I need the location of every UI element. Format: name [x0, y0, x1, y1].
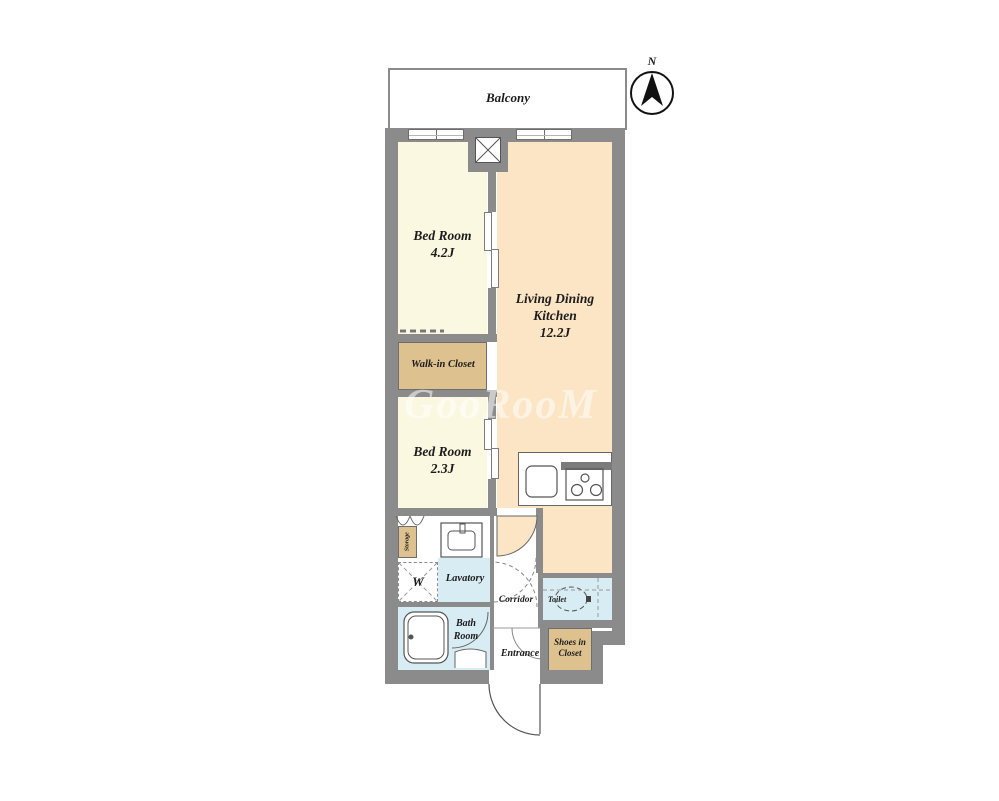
wall-bed1-wic	[398, 334, 497, 342]
compass-icon	[631, 72, 673, 114]
shoes-line1: Shoes in	[554, 637, 586, 647]
wall-right	[612, 128, 625, 645]
floor-plan: Balcony	[0, 0, 999, 801]
bathroom-label: Bath Room	[442, 618, 490, 643]
window-left	[408, 129, 464, 140]
window-right	[516, 129, 572, 140]
wall-bed2-ldk-lower	[488, 479, 496, 508]
walkin-closet-label: Walk-in Closet	[393, 358, 493, 371]
entrance-label: Entrance	[492, 648, 548, 661]
pillar-core	[475, 137, 501, 163]
balcony-label: Balcony	[448, 90, 568, 106]
wall-corridor-left	[490, 514, 494, 670]
washer-label: W	[408, 574, 428, 590]
room-ldk-lower	[538, 508, 612, 573]
bedroom1-name: Bed Room	[413, 228, 471, 243]
entrance-door	[489, 684, 540, 735]
range-hood	[561, 462, 612, 470]
wall-toilet-bottom	[538, 620, 625, 628]
compass-n-label: N	[644, 54, 660, 69]
ldk-line1: Living Dining	[516, 291, 594, 306]
ldk-label: Living Dining Kitchen 12.2J	[495, 291, 615, 342]
bedroom2-name: Bed Room	[413, 444, 471, 459]
bathroom-line1: Bath	[456, 618, 476, 629]
corridor-label: Corridor	[490, 595, 542, 607]
wall-lav-bath	[385, 602, 492, 607]
bedroom2-label: Bed Room 2.3J	[390, 444, 495, 478]
wall-toilet-top	[538, 573, 625, 578]
wall-ldk-corridor	[536, 508, 543, 573]
lavatory-label: Lavatory	[436, 572, 494, 585]
washbasin-area	[417, 516, 492, 558]
ldk-line2: Kitchen	[533, 308, 577, 323]
bedroom1-size: 4.2J	[431, 245, 455, 260]
bedroom2-size: 2.3J	[431, 461, 455, 476]
kitchen-counter	[518, 452, 612, 506]
bathroom-line2: Room	[454, 631, 478, 642]
storage-label: Storage	[404, 526, 412, 558]
shoes-closet-label: Shoes in Closet	[548, 637, 592, 660]
shoes-line2: Closet	[558, 648, 581, 658]
toilet-label: Toilet	[542, 595, 572, 605]
wall-left	[385, 128, 398, 684]
wall-bed1-ldk-upper	[488, 172, 496, 212]
wall-bottom-left	[385, 670, 489, 684]
ldk-size: 12.2J	[540, 325, 570, 340]
bedroom1-label: Bed Room 4.2J	[390, 228, 495, 262]
watermark: GooRooM	[404, 381, 598, 429]
room-corridor	[492, 514, 540, 670]
wall-step-vertical	[592, 631, 603, 684]
entrance-opening	[489, 670, 540, 684]
wall-bed2-bottom	[385, 508, 497, 516]
